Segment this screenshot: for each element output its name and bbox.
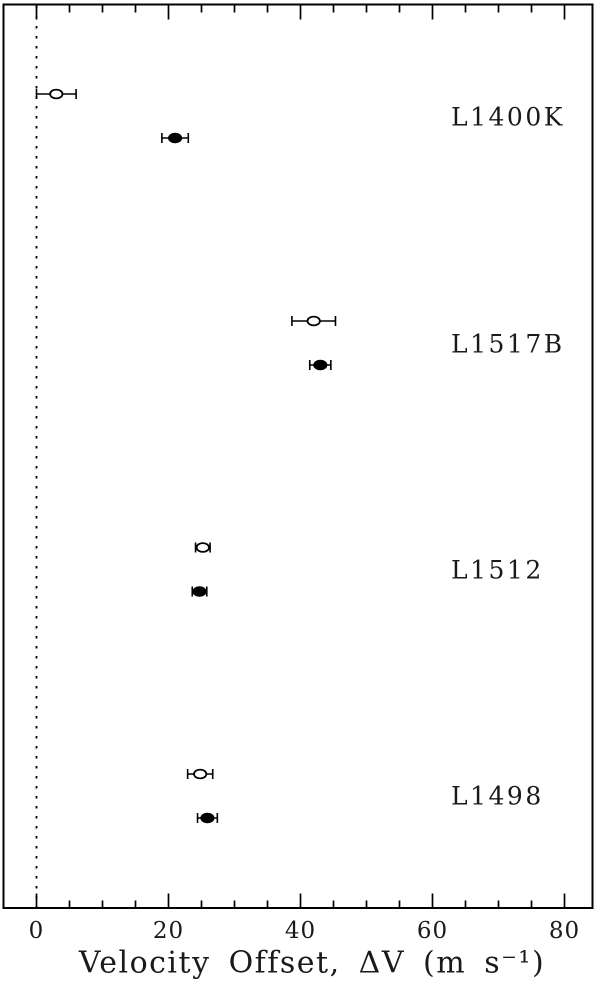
x-axis-ticks <box>37 6 565 908</box>
data-point-group-filled <box>192 587 207 597</box>
filled-circle-marker <box>314 360 327 370</box>
target-label-l1517b: L1517B <box>451 330 565 359</box>
target-label-l1512: L1512 <box>451 556 544 585</box>
velocity-offset-chart: 0 20 40 60 80 Velocity Offset, ΔV (m s⁻¹… <box>0 0 600 983</box>
data-marks <box>37 89 336 823</box>
filled-circle-marker <box>169 133 182 143</box>
open-circle-marker <box>194 770 206 779</box>
open-circle-marker <box>197 543 209 552</box>
data-point-group-open <box>292 316 336 326</box>
filled-circle-marker <box>201 813 214 823</box>
target-label-l1400k: L1400K <box>451 103 565 132</box>
x-axis-tick-label: 80 <box>549 918 580 944</box>
data-point-group-open <box>196 543 211 553</box>
filled-circle-marker <box>193 587 206 597</box>
x-axis-tick-label: 60 <box>417 918 448 944</box>
data-point-group-open <box>37 89 77 99</box>
x-axis-tick-label: 40 <box>285 918 316 944</box>
plot-frame <box>4 5 593 909</box>
open-circle-marker <box>308 317 320 326</box>
figure: 0 20 40 60 80 Velocity Offset, ΔV (m s⁻¹… <box>0 0 600 983</box>
data-point-group-filled <box>198 813 218 823</box>
x-axis-title: Velocity Offset, ΔV (m s⁻¹) <box>78 946 545 981</box>
x-axis-tick-label: 20 <box>153 918 184 944</box>
x-axis-tick-label: 0 <box>29 918 45 944</box>
data-point-group-filled <box>162 133 188 143</box>
target-label-l1498: L1498 <box>451 782 544 811</box>
data-point-group-filled <box>310 360 331 370</box>
data-point-group-open <box>188 769 213 779</box>
open-circle-marker <box>50 90 62 99</box>
